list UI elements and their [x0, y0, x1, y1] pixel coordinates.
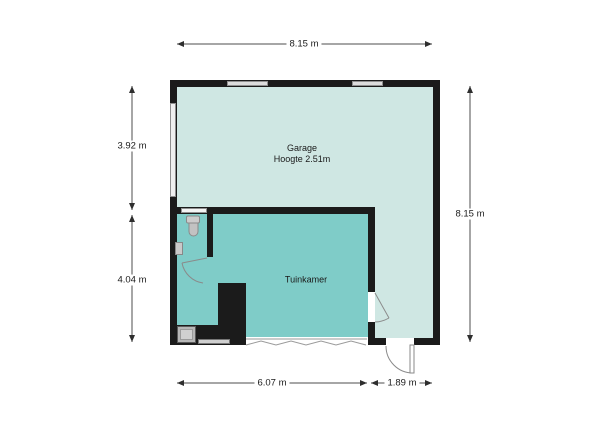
exterior-door-opening	[386, 338, 414, 345]
wall-top	[170, 80, 440, 87]
window-wc-icon	[181, 208, 207, 213]
dim-right-label: 8.15 m	[452, 209, 487, 220]
exterior-door-swing-icon	[386, 345, 414, 373]
dim-top-label: 8.15 m	[286, 39, 321, 50]
folding-door-band	[246, 337, 368, 348]
dim-left-upper-label: 3.92 m	[114, 141, 149, 152]
window-top-2-icon	[352, 81, 383, 86]
appliance-icon	[177, 326, 196, 343]
window-left-icon	[170, 103, 176, 197]
appliance-top-icon	[180, 329, 193, 340]
garage-height-note: Hoogte 2.51m	[274, 154, 331, 165]
interior-door-opening	[368, 292, 375, 322]
floorplan-canvas: Garage Hoogte 2.51m Tuinkamer 8.15 m 3.9…	[0, 0, 608, 430]
dim-bottom-left-label: 6.07 m	[254, 378, 289, 389]
window-bottom-icon	[198, 339, 230, 344]
garage-label: Garage Hoogte 2.51m	[274, 143, 331, 165]
garage-name: Garage	[274, 143, 331, 154]
wall-right	[433, 80, 440, 345]
tuinkamer-floor	[177, 214, 368, 338]
window-top-1-icon	[227, 81, 268, 86]
tuinkamer-label: Tuinkamer	[285, 275, 327, 286]
wall-wc	[207, 214, 213, 257]
dim-left-lower-label: 4.04 m	[114, 275, 149, 286]
dim-bottom-right-label: 1.89 m	[384, 378, 419, 389]
